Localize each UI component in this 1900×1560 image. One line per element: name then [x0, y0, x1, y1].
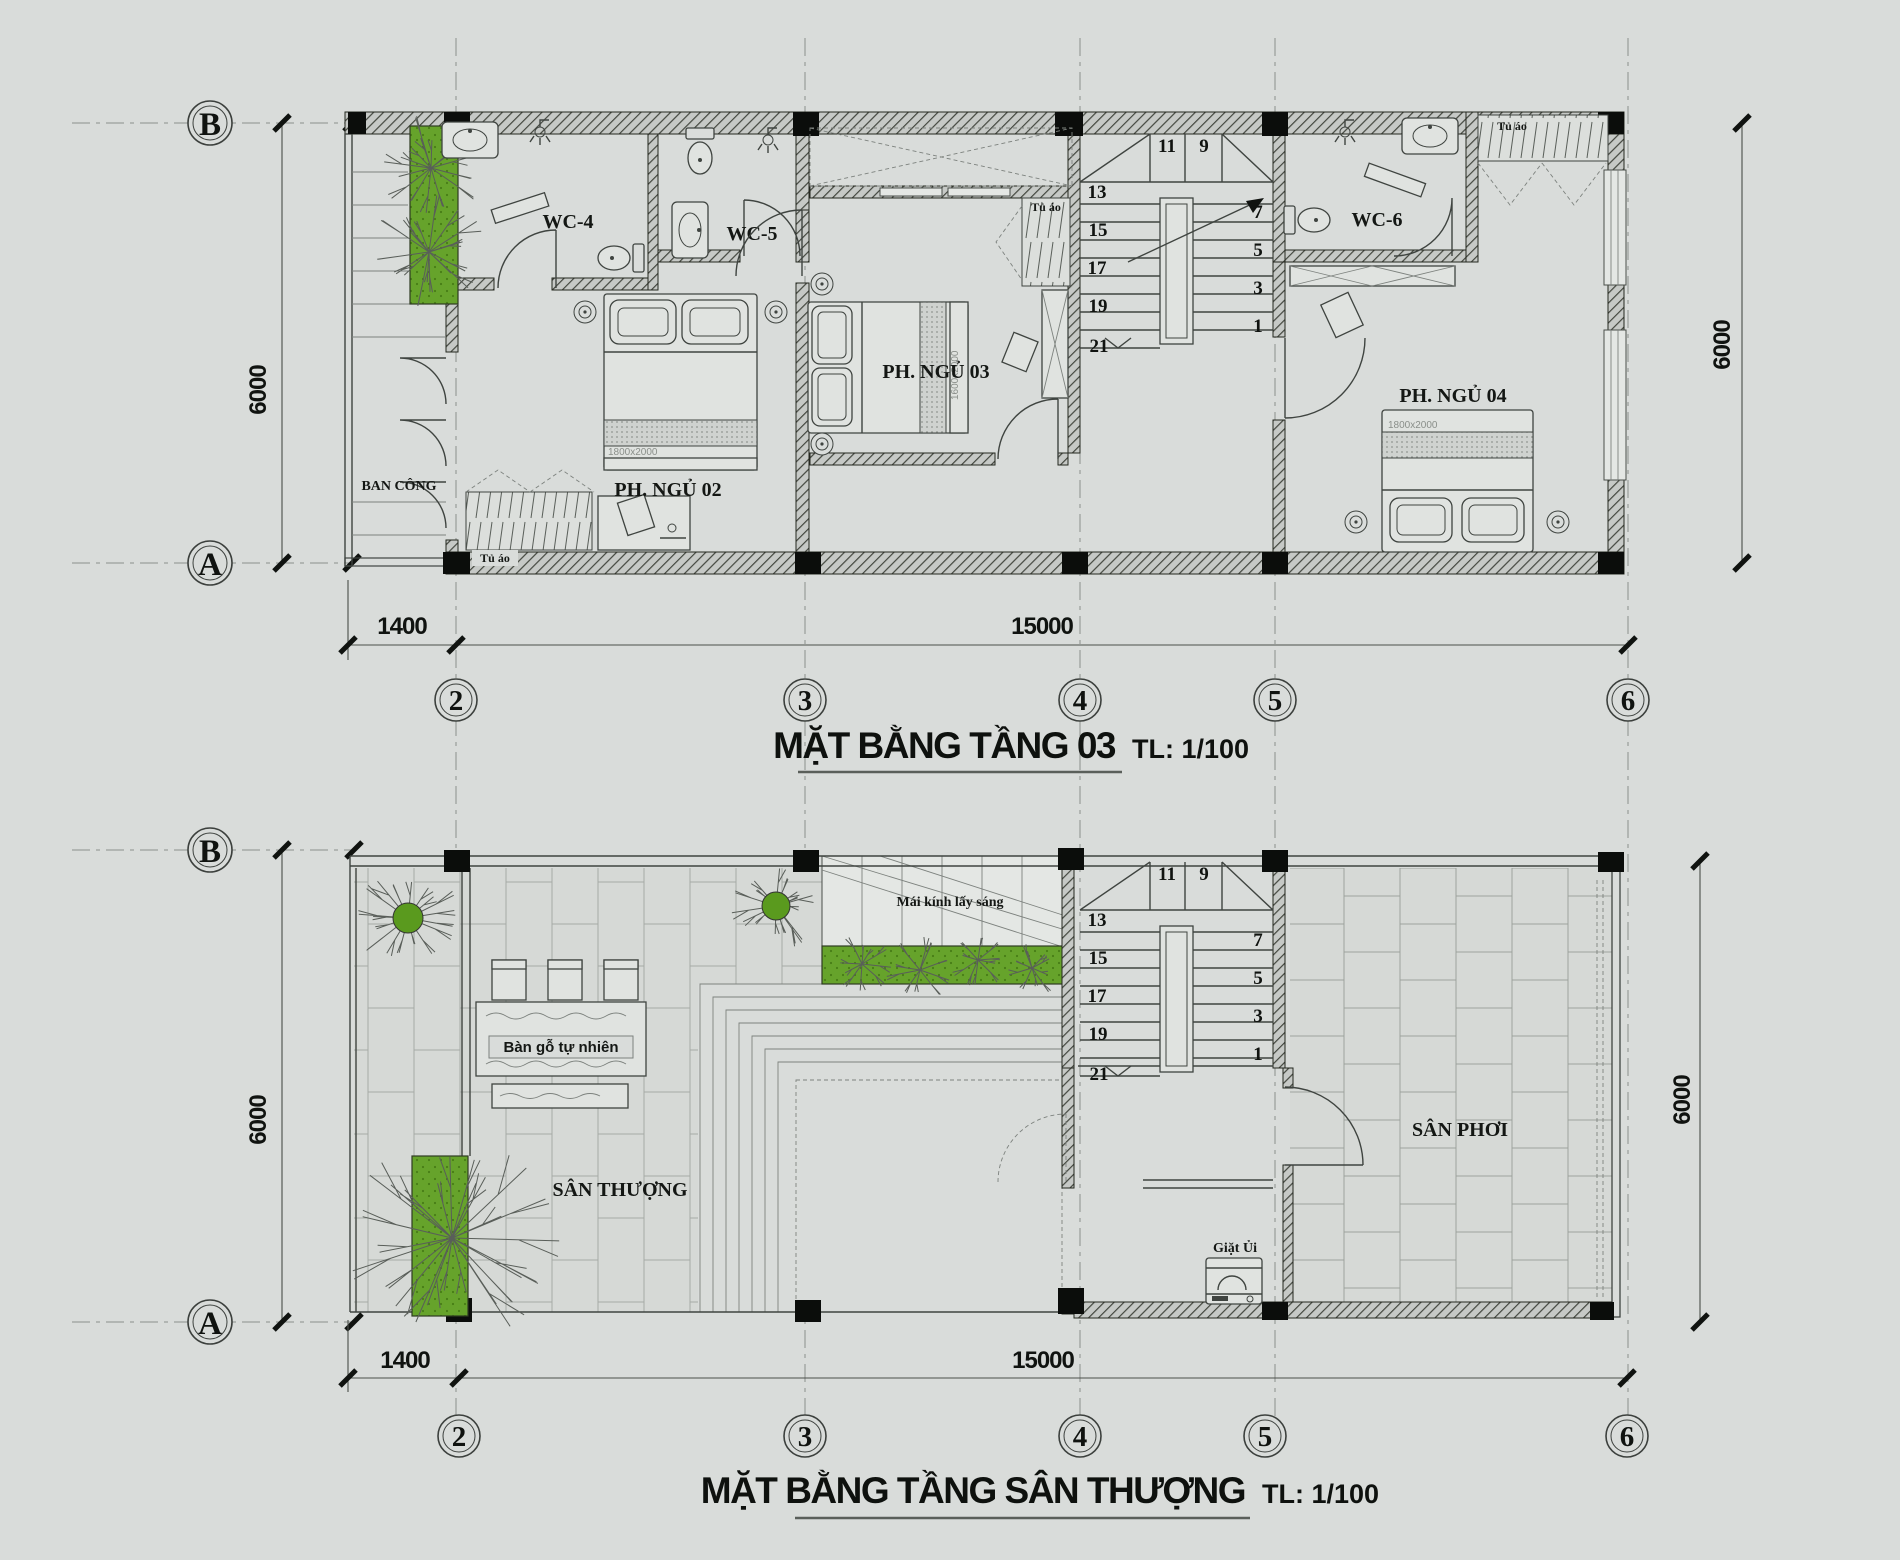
stair-num: 21 — [1090, 1064, 1109, 1085]
room-wc4: WC-4 — [442, 120, 644, 288]
grid-col2-5: 5 — [1258, 1421, 1273, 1453]
grid-row-B2: B — [199, 834, 221, 870]
stair-num: 9 — [1199, 864, 1209, 885]
bed-2: 1800x2000 — [604, 294, 757, 470]
wardrobe-bedroom3: Tủ áo — [996, 198, 1070, 286]
grid-col-4: 4 — [1073, 685, 1088, 717]
stair-num: 11 — [1158, 864, 1176, 885]
grid-row-A2: A — [198, 1306, 222, 1342]
grid-col2-6: 6 — [1620, 1421, 1635, 1453]
grid-col-5: 5 — [1268, 685, 1283, 717]
wood-table-set: Bàn gỗ tự nhiên — [476, 960, 646, 1108]
balcony-label: BAN CÔNG — [361, 477, 436, 494]
stair-num: 1 — [1253, 1044, 1263, 1065]
terrace-label: SÂN THƯỢNG — [552, 1177, 687, 1201]
plan1-floor-3: BAN CÔNG WC-4 WC-5 1800x2000 — [188, 101, 1750, 772]
dim2-right-6000: 6000 — [1669, 1075, 1696, 1125]
stair-num: 19 — [1089, 296, 1108, 317]
balcony: BAN CÔNG — [352, 116, 481, 535]
grid-col-6: 6 — [1621, 685, 1636, 717]
stair-num: 3 — [1253, 1006, 1263, 1027]
grid-col2-4: 4 — [1073, 1421, 1088, 1453]
bed-4: 1800x2000 — [1382, 410, 1533, 552]
dim2-left-6000: 6000 — [245, 1095, 272, 1145]
dim-1400: 1400 — [377, 613, 427, 640]
drying-paving — [1290, 868, 1612, 1313]
wardrobe-tr-label: Tủ áo — [1497, 119, 1527, 133]
stair-num: 13 — [1088, 182, 1107, 203]
wc5-label: WC-5 — [726, 223, 777, 245]
bed4-size: 1800x2000 — [1388, 420, 1438, 431]
stair-num: 7 — [1253, 202, 1263, 223]
plan2-roof-terrace: Mái kính lấy sáng — [188, 828, 1708, 1518]
dim-right-6000: 6000 — [1709, 320, 1736, 370]
grid-col-3: 3 — [798, 685, 813, 717]
grid-col2-2: 2 — [452, 1421, 467, 1453]
dim2-15000: 15000 — [1012, 1347, 1074, 1374]
terrace-planter-box — [412, 1156, 468, 1316]
stair-num: 9 — [1199, 136, 1209, 157]
stair-num: 17 — [1088, 258, 1108, 279]
dressing-table-bedroom4 — [1290, 266, 1455, 286]
wc6-label: WC-6 — [1351, 209, 1402, 231]
stair-num: 11 — [1158, 136, 1176, 157]
stair-num: 19 — [1089, 1024, 1108, 1045]
bedroom2-label: PH. NGỦ 02 — [614, 478, 721, 501]
plan2-stairs: 11 9 13 15 17 19 21 7 5 3 1 — [1080, 862, 1273, 1085]
stair-num: 17 — [1088, 986, 1108, 1007]
bed2-size: 1800x2000 — [608, 447, 658, 458]
plan1-stairs: 11 9 13 15 17 19 21 7 5 3 1 — [1080, 134, 1273, 357]
plan1-title: MẶT BẰNG TẦNG 03 TL: 1/100 — [773, 725, 1249, 772]
room-wc5: WC-5 — [672, 128, 800, 258]
dim-left-6000: 6000 — [245, 365, 272, 415]
plan2-scale-text: TL: 1/100 — [1262, 1479, 1379, 1509]
grid-col2-3: 3 — [798, 1421, 813, 1453]
washing-machine — [1206, 1258, 1262, 1304]
balcony-doors — [400, 358, 446, 528]
table-label: Bàn gỗ tự nhiên — [503, 1039, 618, 1056]
stair-num: 5 — [1253, 968, 1263, 989]
wardrobe3-label: Tủ áo — [1031, 200, 1061, 214]
grid-col-2: 2 — [449, 685, 464, 717]
stair-num: 15 — [1089, 220, 1108, 241]
room-bedroom3: 1600x2000 Tủ áo PH. NGỦ 03 — [808, 198, 1070, 459]
wardrobe2-label: Tủ áo — [480, 551, 510, 565]
dim2-1400: 1400 — [380, 1347, 430, 1374]
dressing-table-bedroom3 — [1002, 290, 1068, 398]
stair-num: 7 — [1253, 930, 1263, 951]
skylight-label: Mái kính lấy sáng — [897, 895, 1004, 910]
drying-label: SÂN PHƠI — [1412, 1117, 1508, 1141]
plan2-title-text: MẶT BẰNG TẦNG SÂN THƯỢNG — [701, 1469, 1245, 1511]
dim-15000: 15000 — [1011, 613, 1073, 640]
stair-num: 1 — [1253, 316, 1263, 337]
room-wc6: WC-6 — [1284, 118, 1458, 256]
plan2-title: MẶT BẰNG TẦNG SÂN THƯỢNG TL: 1/100 — [701, 1469, 1379, 1518]
architectural-sheet: BAN CÔNG WC-4 WC-5 1800x2000 — [0, 0, 1900, 1560]
grid-row-B: B — [199, 107, 221, 143]
laundry-label: Giặt Ủi — [1213, 1239, 1257, 1256]
bedroom3-label: PH. NGỦ 03 — [882, 360, 989, 383]
stair-num: 3 — [1253, 278, 1263, 299]
wc4-label: WC-4 — [542, 211, 593, 233]
plan1-scale-text: TL: 1/100 — [1132, 734, 1249, 764]
stair-num: 13 — [1088, 910, 1107, 931]
void-above — [810, 128, 1072, 186]
stair-num: 15 — [1089, 948, 1108, 969]
plan1-title-text: MẶT BẰNG TẦNG 03 — [773, 725, 1116, 766]
room-bedroom4: 1800x2000 PH. NGỦ 04 — [1285, 266, 1569, 552]
skylight: Mái kính lấy sáng — [822, 856, 1072, 946]
stair-num: 5 — [1253, 240, 1263, 261]
floor-plans-drawing: BAN CÔNG WC-4 WC-5 1800x2000 — [0, 0, 1900, 1560]
bedroom4-label: PH. NGỦ 04 — [1399, 384, 1506, 407]
stair-num: 21 — [1090, 336, 1109, 357]
desk-bedroom2 — [598, 495, 690, 550]
grid-row-A: A — [198, 547, 222, 583]
wardrobe-top-right: Tủ áo — [1478, 115, 1608, 205]
